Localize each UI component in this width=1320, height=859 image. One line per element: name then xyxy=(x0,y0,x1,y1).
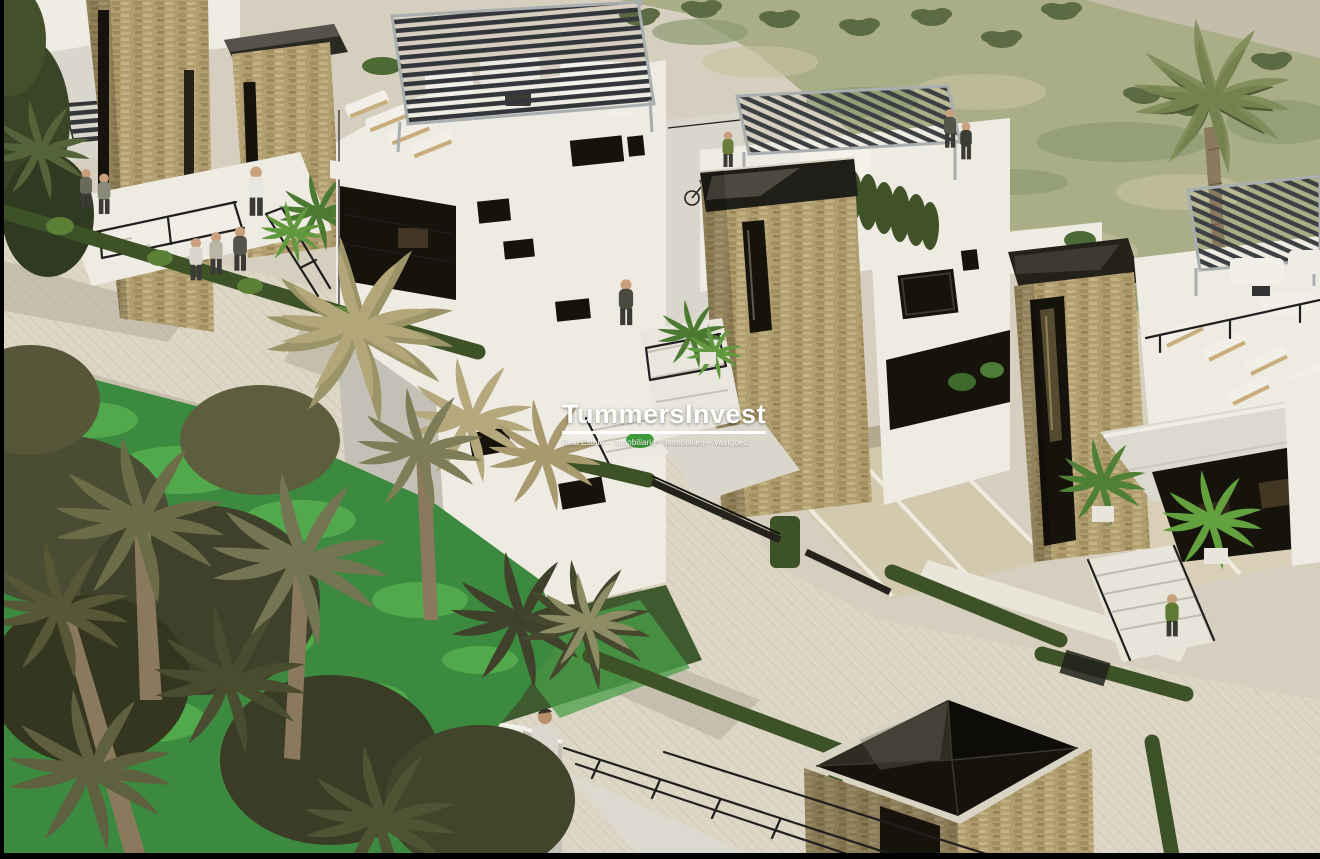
watermark: TummersInvest Real Estate – Inmobiliaria… xyxy=(562,401,766,447)
watermark-tagline: Real Estate – Inmobiliaria – Immobilien … xyxy=(562,438,766,447)
render-screenshot: TummersInvest Real Estate – Inmobiliaria… xyxy=(0,0,1320,859)
villa-center xyxy=(640,86,1010,520)
left-border-strip xyxy=(0,0,4,859)
watermark-brand: TummersInvest xyxy=(562,401,766,434)
bottom-border-strip xyxy=(0,853,1320,859)
